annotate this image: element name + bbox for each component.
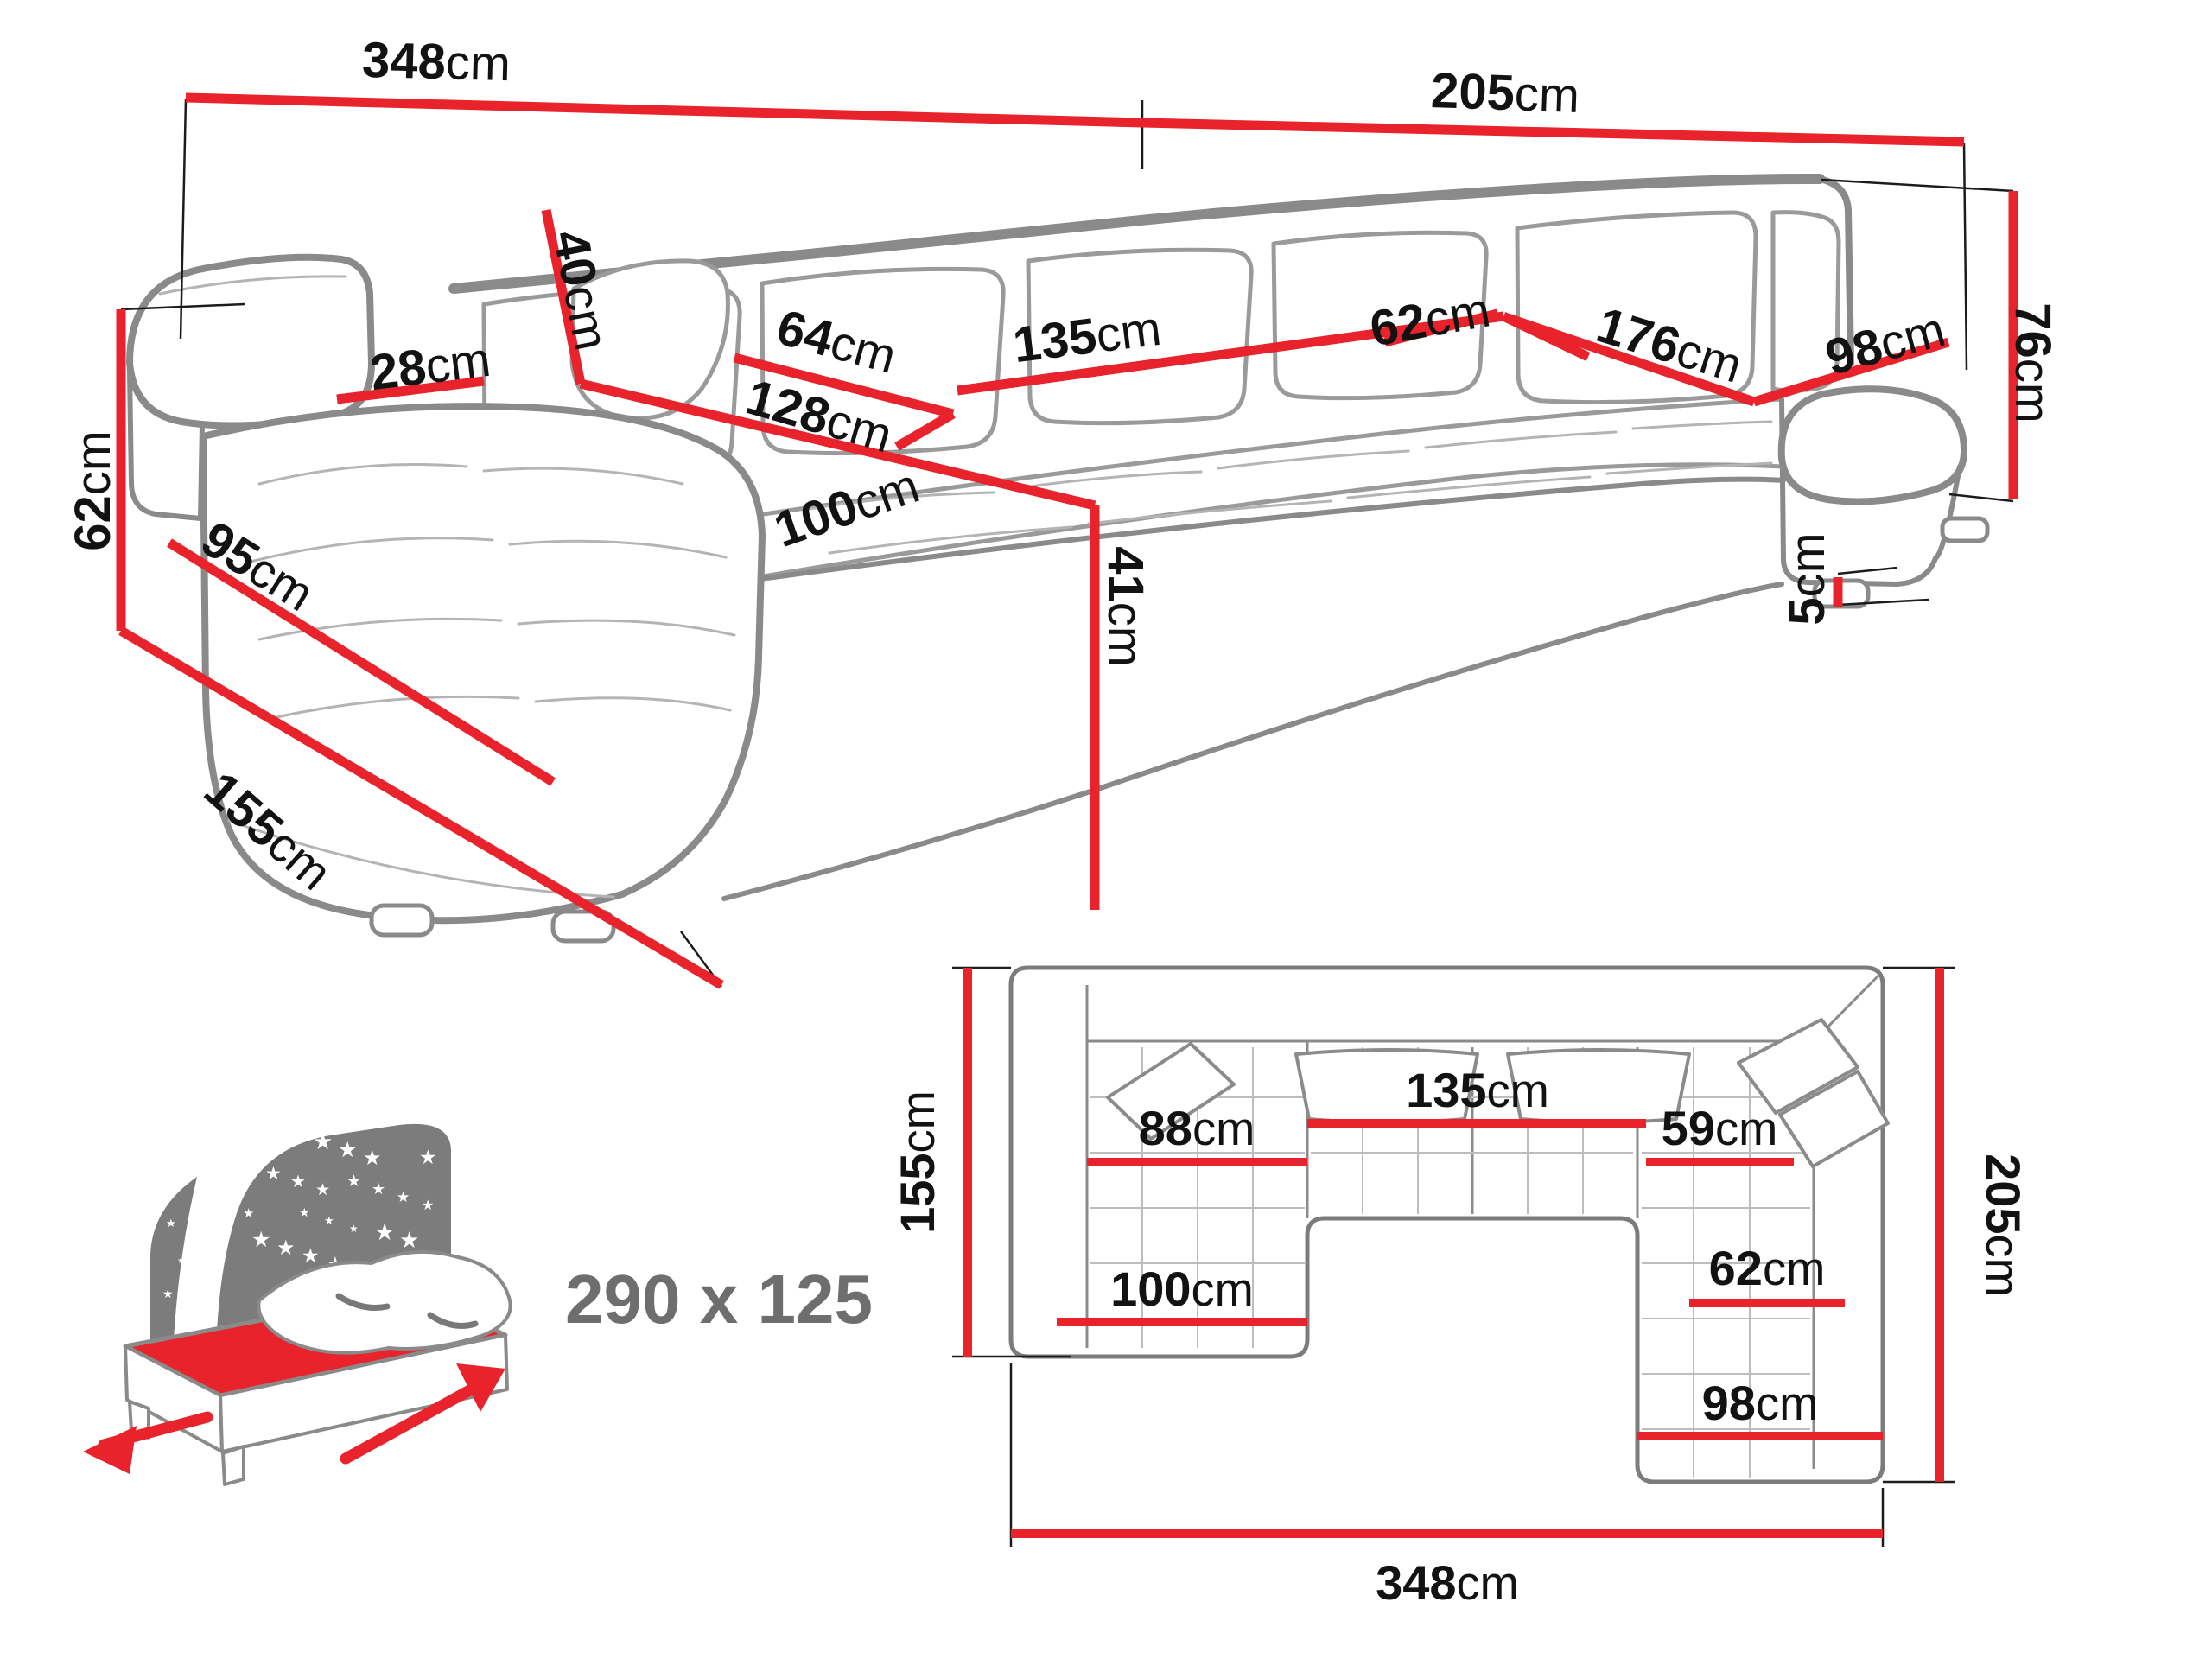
svg-text:★: ★ <box>276 1236 296 1260</box>
plan-dim-100: 100cm <box>1110 1265 1254 1313</box>
sleeping-area-size: 290 x 125 <box>565 1265 873 1334</box>
svg-text:★: ★ <box>243 1205 254 1221</box>
svg-text:★: ★ <box>349 1223 359 1235</box>
svg-text:★: ★ <box>324 1215 334 1228</box>
svg-text:★: ★ <box>338 1137 357 1162</box>
plan-dim-348: 348cm <box>1376 1559 1519 1607</box>
plan-dim-98: 98cm <box>1702 1379 1819 1427</box>
plan-dim-135: 135cm <box>1406 1066 1549 1115</box>
svg-text:★: ★ <box>299 1206 310 1220</box>
dim-back-height-76: 76cm <box>2007 302 2057 423</box>
svg-text:★: ★ <box>232 1133 241 1145</box>
svg-text:★: ★ <box>313 1129 333 1155</box>
svg-text:★: ★ <box>422 1197 434 1213</box>
plan-dim-59: 59cm <box>1662 1104 1778 1153</box>
svg-text:★: ★ <box>372 1180 385 1198</box>
svg-text:★: ★ <box>419 1147 437 1169</box>
svg-text:★: ★ <box>240 1155 257 1177</box>
svg-text:★: ★ <box>290 1171 306 1192</box>
svg-text:★: ★ <box>166 1217 176 1230</box>
svg-text:★: ★ <box>251 1227 270 1252</box>
svg-text:★: ★ <box>177 1256 185 1266</box>
sofa-dimensions-diagram: ★★★★★★★★★★★★★★★★★★★★★★★★★★★★★★★★★★★★★ 34… <box>0 0 2212 1659</box>
dim-overall-width-348: 348cm <box>361 35 511 89</box>
dim-leg-height-5: 5cm <box>1783 532 1833 625</box>
svg-text:★: ★ <box>315 1180 330 1199</box>
plan-dim-62: 62cm <box>1709 1244 1826 1293</box>
svg-text:★: ★ <box>397 1189 410 1206</box>
svg-text:★: ★ <box>399 1228 419 1254</box>
plan-dim-88: 88cm <box>1139 1104 1255 1153</box>
sleeping-function-icon: ★★★★★★★★★★★★★★★★★★★★★★★★★★★★★★★★★★★★★ <box>83 1124 511 1484</box>
plan-dim-155: 155cm <box>893 1090 942 1234</box>
svg-text:★: ★ <box>265 1163 282 1184</box>
svg-text:★: ★ <box>180 1317 188 1326</box>
svg-text:★: ★ <box>302 1245 320 1268</box>
svg-text:★: ★ <box>363 1146 382 1170</box>
plan-dim-205: 205cm <box>1979 1154 2027 1297</box>
svg-text:★: ★ <box>374 1219 395 1246</box>
svg-text:★: ★ <box>346 1172 361 1191</box>
dim-overall-depth-205: 205cm <box>1430 66 1580 121</box>
sofa-perspective-sketch <box>130 179 1987 941</box>
dim-seat-height-41: 41cm <box>1100 546 1150 667</box>
sofa-diagram-sketch: ★★★★★★★★★★★★★★★★★★★★★★★★★★★★★★★★★★★★★ <box>0 0 2212 1659</box>
dim-armrest-height-62: 62cm <box>68 430 118 551</box>
svg-text:★: ★ <box>162 1287 174 1301</box>
